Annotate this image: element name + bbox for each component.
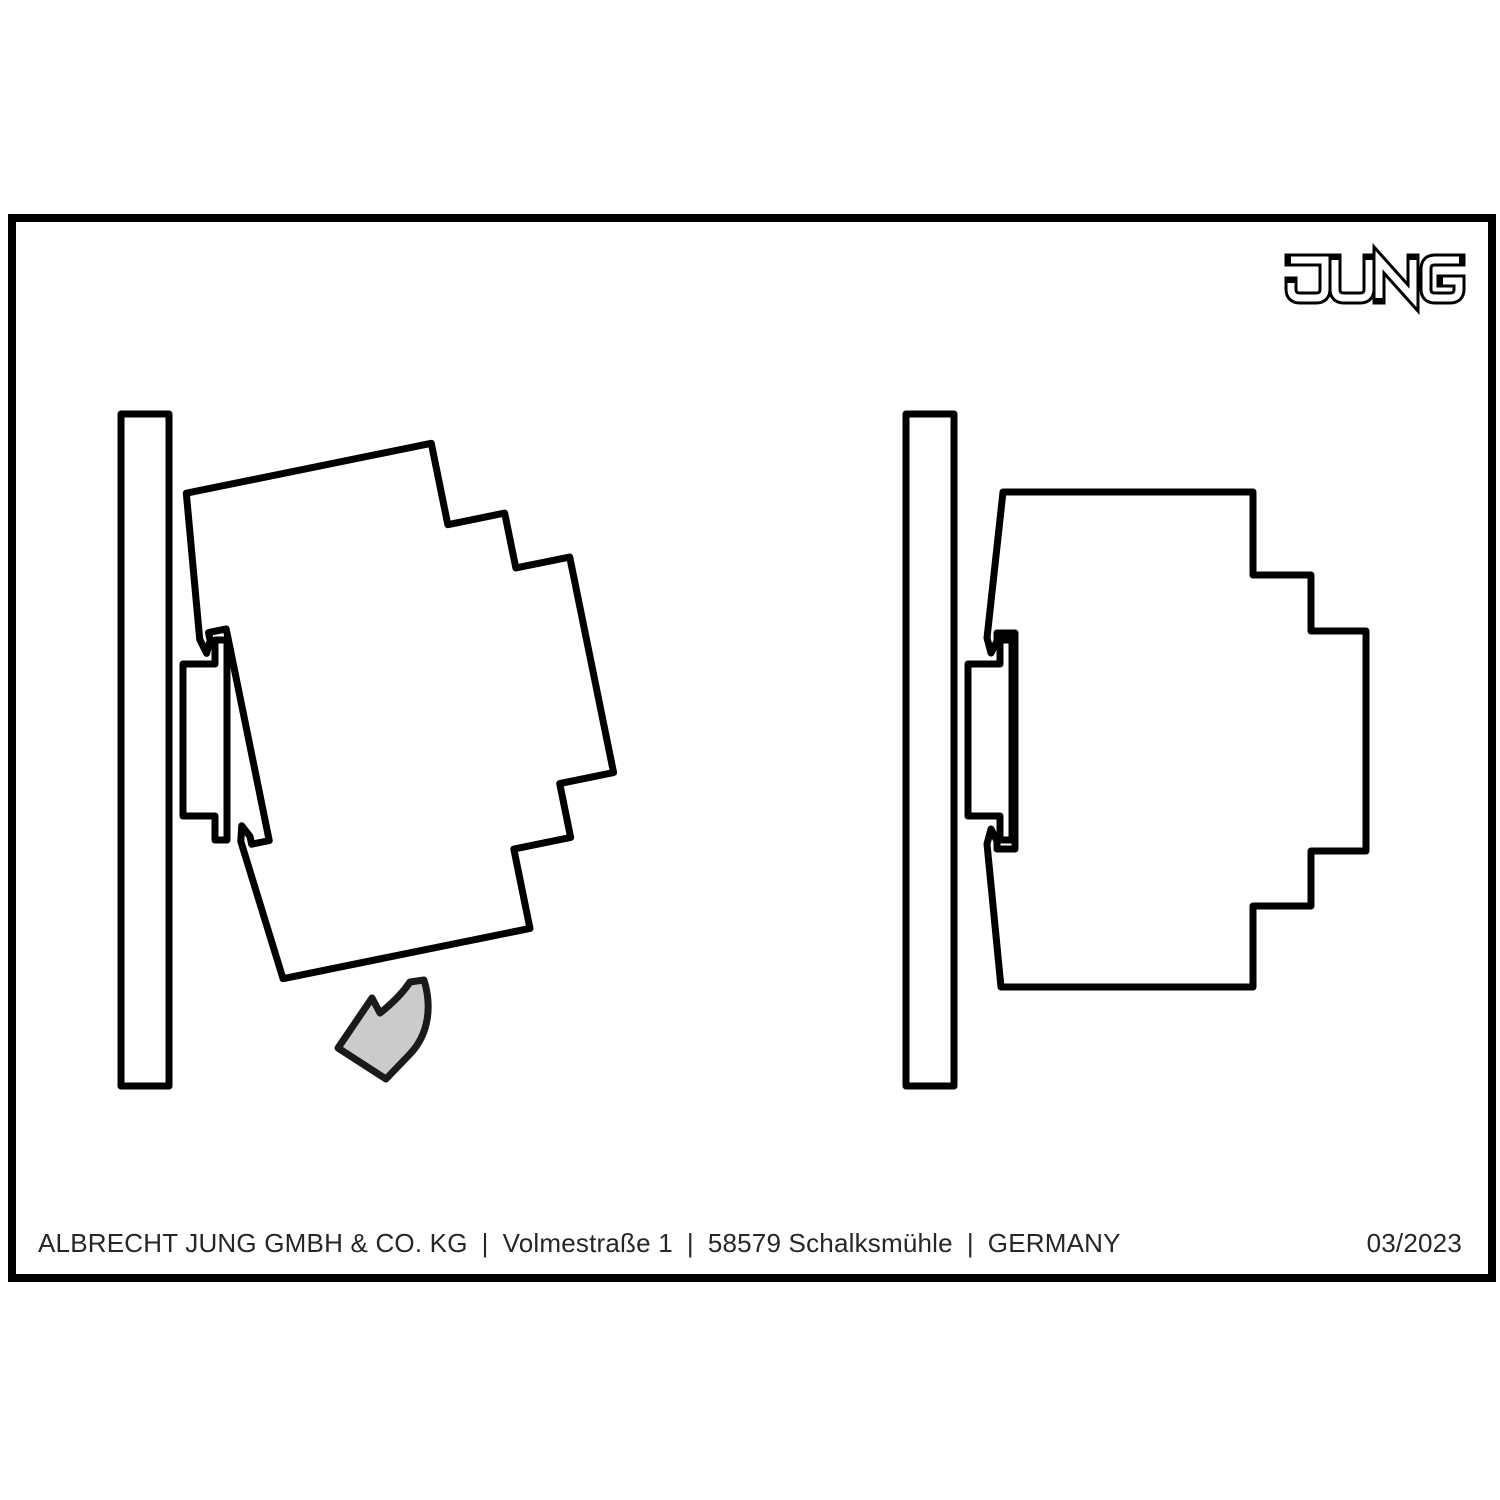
footer-separator: | bbox=[967, 1228, 974, 1259]
device-mounted bbox=[987, 492, 1366, 987]
instruction-sheet: ALBRECHT JUNG GMBH & CO. KG | Volmestraß… bbox=[0, 0, 1500, 1500]
device-tilted bbox=[171, 421, 641, 982]
din-rail-right bbox=[968, 640, 1012, 840]
footer-street: Volmestraße 1 bbox=[503, 1228, 673, 1259]
footer-separator: | bbox=[482, 1228, 489, 1259]
footer-country: GERMANY bbox=[988, 1228, 1121, 1259]
footer-company: ALBRECHT JUNG GMBH & CO. KG bbox=[38, 1228, 468, 1259]
mounting-wall-left bbox=[121, 414, 169, 1086]
jung-logo bbox=[1291, 260, 1459, 298]
footer: ALBRECHT JUNG GMBH & CO. KG | Volmestraß… bbox=[38, 1226, 1462, 1260]
din-rail-left bbox=[183, 640, 227, 840]
footer-issue-date: 03/2023 bbox=[1367, 1228, 1462, 1259]
footer-separator: | bbox=[687, 1228, 694, 1259]
diagram-step-tilt bbox=[121, 414, 641, 1086]
mounting-wall-right bbox=[906, 414, 954, 1086]
jung-logo-outline bbox=[1291, 260, 1459, 298]
footer-city: 58579 Schalksmühle bbox=[708, 1228, 953, 1259]
diagram-step-mounted bbox=[906, 414, 1366, 1086]
mounting-diagram-canvas bbox=[0, 0, 1500, 1500]
rotation-arrow-icon bbox=[338, 980, 428, 1079]
